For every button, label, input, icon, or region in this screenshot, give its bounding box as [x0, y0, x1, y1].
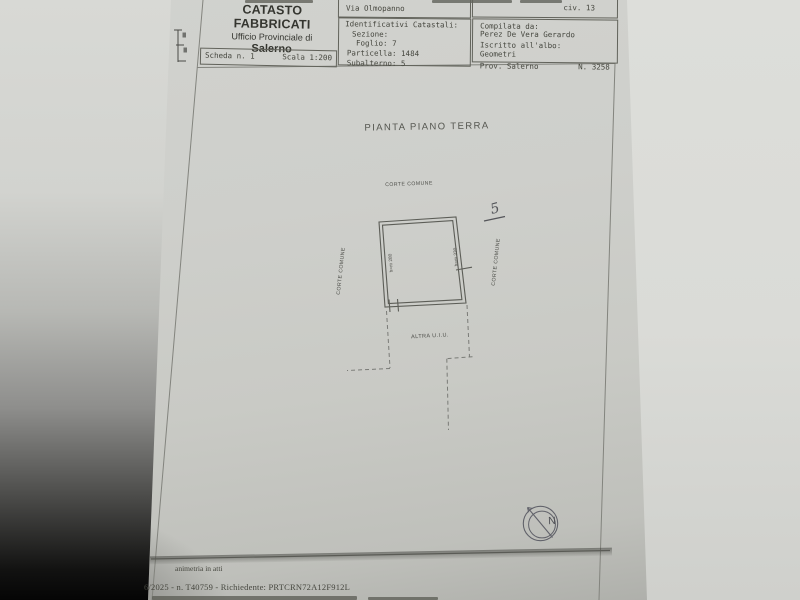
- plan-title: PIANTA PIANO TERRA: [364, 120, 489, 133]
- catastali-box: Identificativi Catastali: Sezione: Fogli…: [338, 17, 471, 66]
- catastali-foglio: Foglio: 7: [356, 39, 470, 49]
- register-number: N. 3258: [578, 63, 610, 72]
- scheda-number: Scheda n. 1: [205, 52, 255, 61]
- office-subtitle: Ufficio Provinciale di: [212, 31, 332, 43]
- cropped-text-fragment: [152, 596, 357, 600]
- footer-note: animetria in atti: [175, 564, 222, 573]
- compass-north-letter: N: [548, 515, 556, 527]
- footer-protocol: 6/2025 - n. T40759 - Richiedente: PRTCRN…: [144, 582, 350, 592]
- scheda-box: Scheda n. 1 Scala 1:200: [200, 48, 337, 68]
- office-title: CATASTO FABBRICATI: [212, 2, 332, 32]
- province: Prov. Salerno: [480, 62, 539, 71]
- scale-value: Scala 1:200: [282, 54, 332, 63]
- civic-number-box: civ. 13: [472, 0, 618, 19]
- surveyor-name: Perez De Vera Gerardo: [480, 30, 610, 40]
- catastali-subalterno: Subalterno: 5: [347, 59, 470, 69]
- photographed-cadastral-document: CATASTO FABBRICATI Ufficio Provinciale d…: [0, 0, 800, 600]
- civic-number: civ. 13: [563, 4, 595, 13]
- address-box: Via Olmopanno: [338, 0, 471, 18]
- catastali-particella: Particella: 1484: [347, 49, 470, 59]
- compilata-box: Compilata da: Perez De Vera Gerardo Iscr…: [472, 18, 618, 63]
- albo-value: Geometri: [480, 50, 610, 60]
- street-name: Via Olmopanno: [346, 4, 405, 13]
